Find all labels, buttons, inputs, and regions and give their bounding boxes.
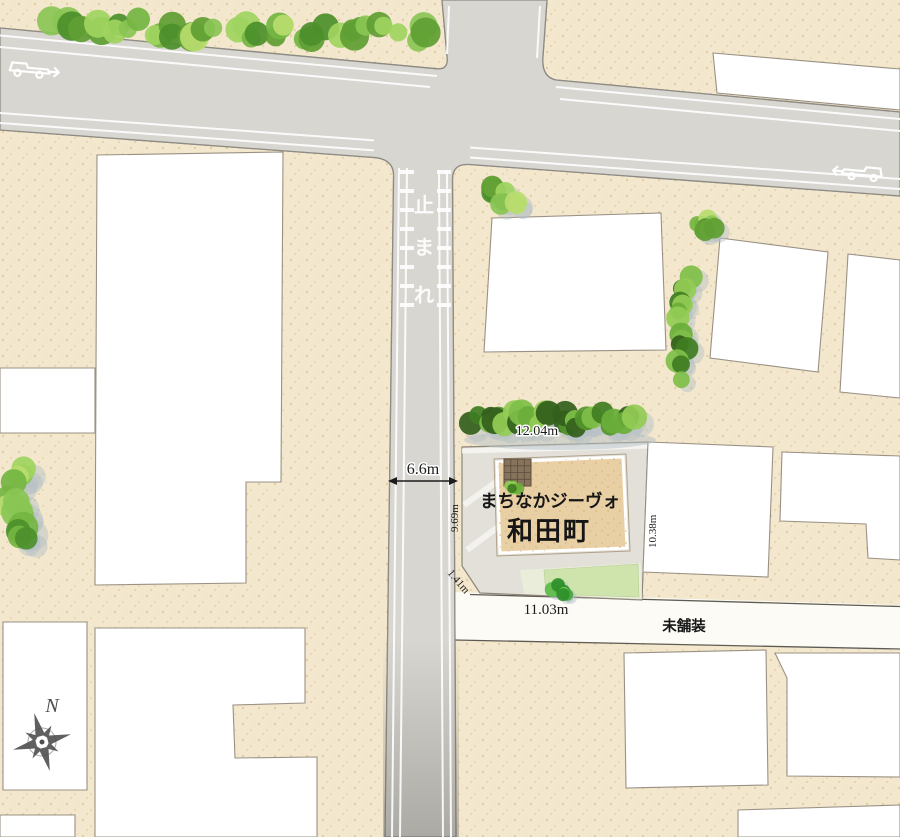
building: [484, 213, 666, 352]
building: [643, 442, 773, 577]
site-name-line2: 和田町: [507, 517, 591, 546]
building: [775, 653, 900, 777]
stop-marking-char-3: れ: [414, 284, 434, 307]
building: [0, 815, 75, 837]
stop-marking-char-1: 止: [414, 194, 434, 217]
compass-north-label: N: [44, 695, 60, 717]
building: [624, 650, 768, 788]
building: [738, 805, 900, 837]
building: [840, 254, 900, 398]
unpaved-road-label: 未舗装: [661, 617, 706, 635]
site-name-line1: まちなかジーヴォ: [480, 491, 620, 511]
site-map: 止 ま れ: [0, 0, 900, 837]
north-edge-dimension: 12.04m: [516, 424, 559, 439]
stop-marking-char-2: ま: [414, 236, 434, 259]
south-edge-dimension: 11.03m: [524, 602, 569, 618]
site-map-svg: 止 ま れ: [0, 0, 900, 837]
road-width-label: 6.6m: [407, 461, 440, 478]
west-edge-dimension: 9.69m: [449, 504, 461, 532]
building: [710, 238, 828, 372]
east-edge-dimension: 10.38m: [647, 514, 659, 548]
building: [0, 368, 95, 433]
